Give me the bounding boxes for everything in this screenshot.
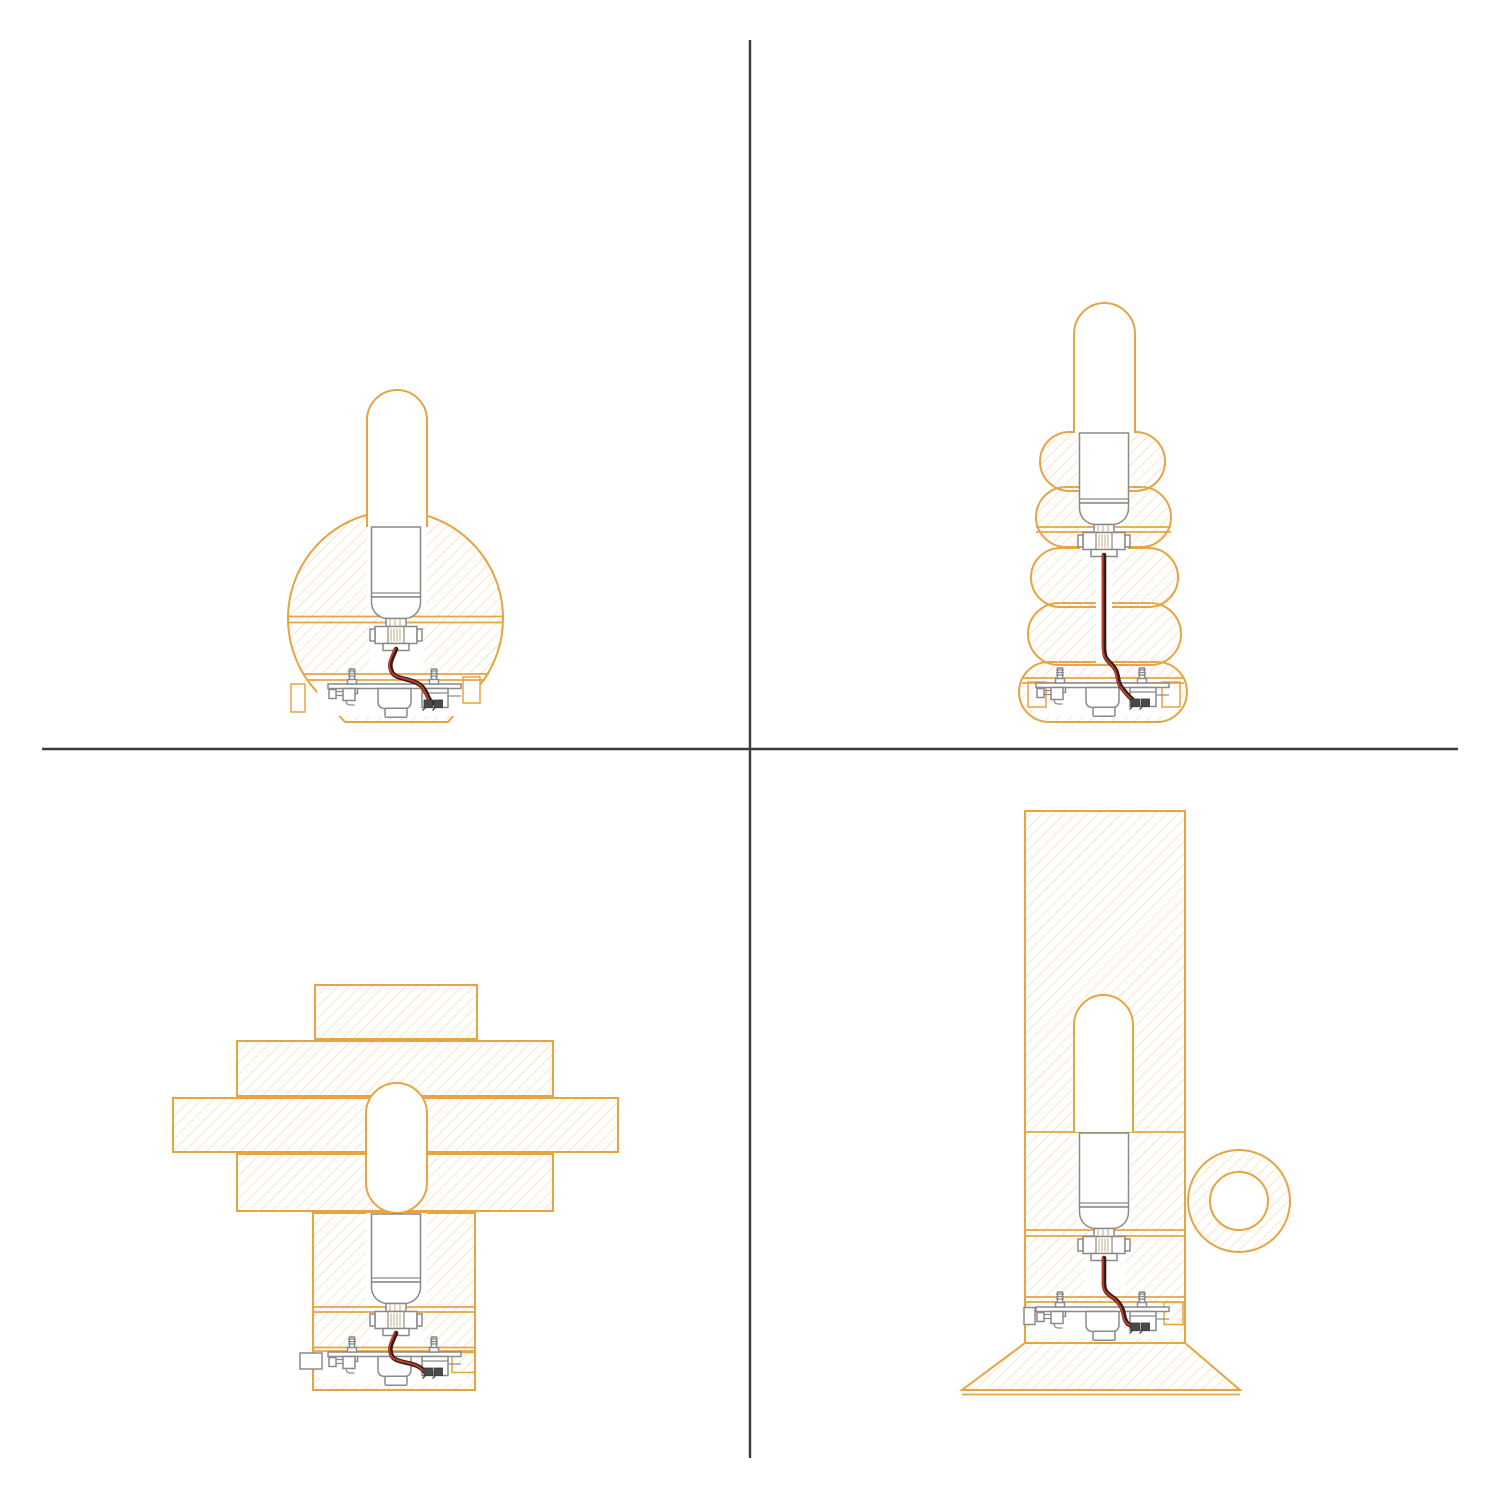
ring-handle (1188, 1150, 1290, 1252)
panel-stacked-bubble-lamp (1019, 303, 1187, 722)
bulb-glass (372, 1214, 421, 1304)
bulb-glass (1080, 433, 1129, 525)
shell-block-right (1164, 1303, 1183, 1325)
bulb-glass (372, 527, 421, 619)
left-anchor-piece (300, 1353, 322, 1369)
left-anchor-piece (1024, 1308, 1035, 1325)
panel-stepped-slab-lamp (173, 985, 618, 1390)
shell-slot-left (291, 684, 305, 712)
panel-cylinder-ring-lamp (962, 811, 1290, 1395)
lamp-cross-section-sheet (0, 0, 1500, 1500)
panel-sphere-lamp (288, 390, 503, 722)
flared-base (962, 1343, 1240, 1390)
bulb-glass (1080, 1133, 1129, 1229)
drawing-sheet (0, 0, 1500, 1500)
shell-slot-right (463, 677, 480, 703)
